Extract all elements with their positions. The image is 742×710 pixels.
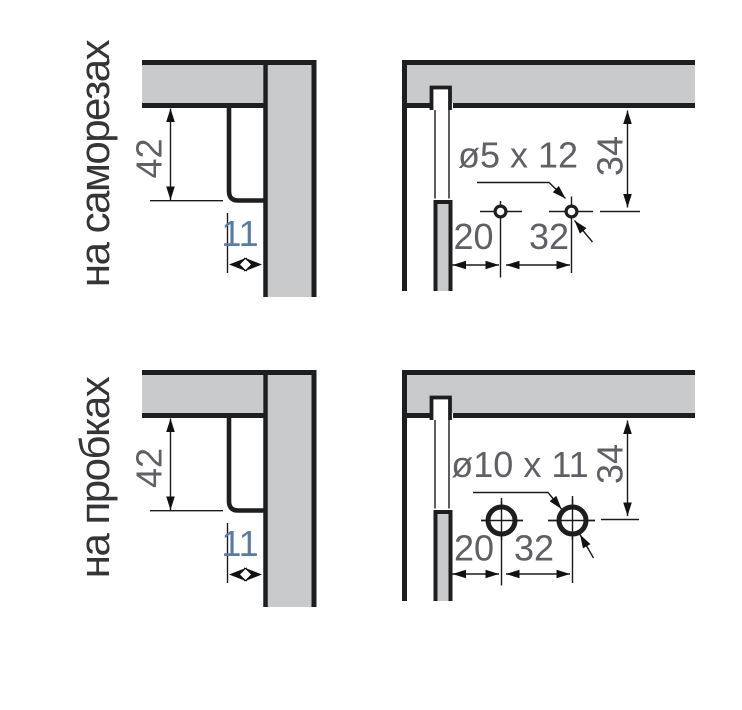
dimension-20: 20 bbox=[453, 216, 500, 265]
rail-notch bbox=[432, 398, 451, 421]
hole-right bbox=[548, 496, 639, 583]
hanging-rail bbox=[435, 420, 451, 601]
hole-spec: ø10 x 11 bbox=[451, 444, 588, 509]
dim-42-label: 42 bbox=[130, 448, 170, 488]
hole-pointer-arrow bbox=[580, 535, 594, 559]
hanging-rail bbox=[435, 110, 451, 291]
dimension-42: 42 bbox=[130, 109, 223, 201]
dimension-42: 42 bbox=[130, 419, 223, 511]
dimension-32: 32 bbox=[506, 216, 570, 265]
dim-34-label: 34 bbox=[590, 444, 631, 484]
shelf-bracket bbox=[229, 108, 264, 201]
hole-pointer-arrow bbox=[575, 221, 593, 243]
drawing-canvas: на саморезах на пробках 42 bbox=[0, 0, 742, 710]
dim-34-label: 34 bbox=[590, 136, 631, 176]
dim-20-label: 20 bbox=[454, 528, 494, 569]
dimension-11: 11 bbox=[221, 523, 262, 583]
dimension-34: 34 bbox=[590, 421, 631, 517]
dimension-34: 34 bbox=[590, 111, 631, 208]
side-view-screws: 42 11 bbox=[130, 50, 330, 310]
front-view-dowels: ø10 x 11 34 20 32 bbox=[395, 360, 705, 620]
dimension-11: 11 bbox=[221, 213, 262, 273]
dimension-32: 32 bbox=[506, 528, 570, 575]
dimension-20: 20 bbox=[453, 528, 500, 575]
row-label-screws: на саморезах bbox=[71, 41, 119, 287]
dim-32-label: 32 bbox=[514, 528, 554, 569]
front-view-screws: ø5 x 12 34 20 32 bbox=[395, 50, 705, 310]
side-view-dowels: 42 11 bbox=[130, 360, 330, 620]
hole-spec-label: ø5 x 12 bbox=[458, 135, 578, 176]
row-label-dowels: на пробках bbox=[71, 378, 119, 578]
dim-11-label: 11 bbox=[221, 213, 258, 254]
dim-11-label: 11 bbox=[221, 523, 258, 564]
hole-spec: ø5 x 12 bbox=[458, 135, 578, 199]
shelf-bracket bbox=[229, 418, 264, 511]
dim-42-label: 42 bbox=[130, 138, 170, 178]
hole-spec-label: ø10 x 11 bbox=[451, 444, 588, 485]
rail-notch bbox=[432, 88, 451, 111]
side-panel bbox=[266, 62, 315, 297]
side-panel bbox=[266, 372, 315, 607]
dim-32-label: 32 bbox=[529, 216, 569, 257]
dim-20-label: 20 bbox=[453, 216, 493, 257]
